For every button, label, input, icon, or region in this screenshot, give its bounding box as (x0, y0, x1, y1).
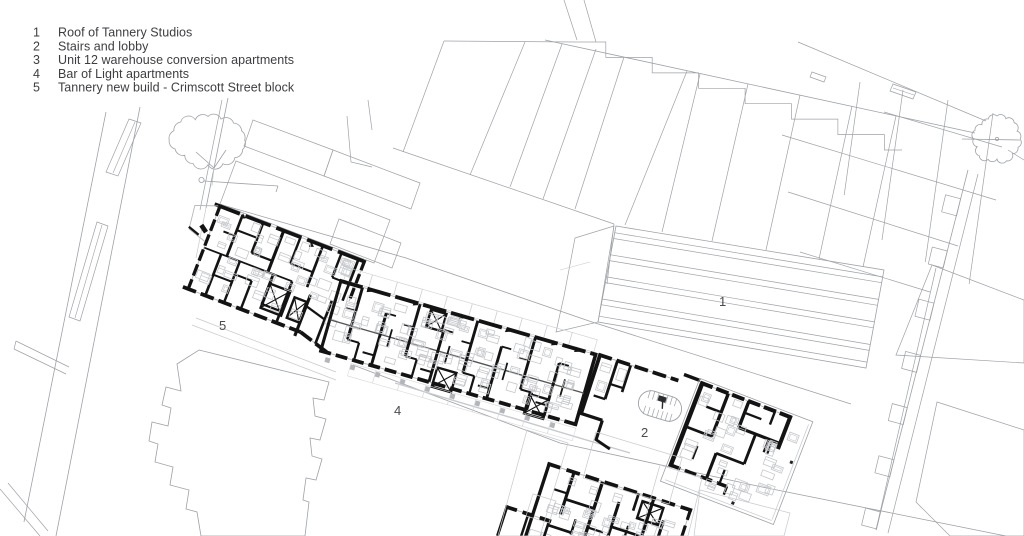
svg-text:2: 2 (33, 39, 40, 53)
svg-text:1: 1 (33, 26, 40, 40)
svg-text:1: 1 (719, 294, 726, 309)
svg-text:4: 4 (394, 403, 401, 418)
svg-text:Stairs and lobby: Stairs and lobby (58, 39, 149, 53)
svg-text:Roof of Tannery Studios: Roof of Tannery Studios (58, 26, 192, 40)
svg-text:2: 2 (641, 425, 648, 440)
svg-text:5: 5 (219, 318, 226, 333)
svg-text:5: 5 (33, 81, 40, 95)
svg-text:3: 3 (33, 53, 40, 67)
svg-text:Tannery new build - Crimscott: Tannery new build - Crimscott Street blo… (58, 81, 295, 95)
svg-text:4: 4 (33, 67, 40, 81)
svg-text:Bar of Light apartments: Bar of Light apartments (58, 67, 189, 81)
svg-text:Unit 12 warehouse conversion a: Unit 12 warehouse conversion apartments (58, 53, 294, 67)
